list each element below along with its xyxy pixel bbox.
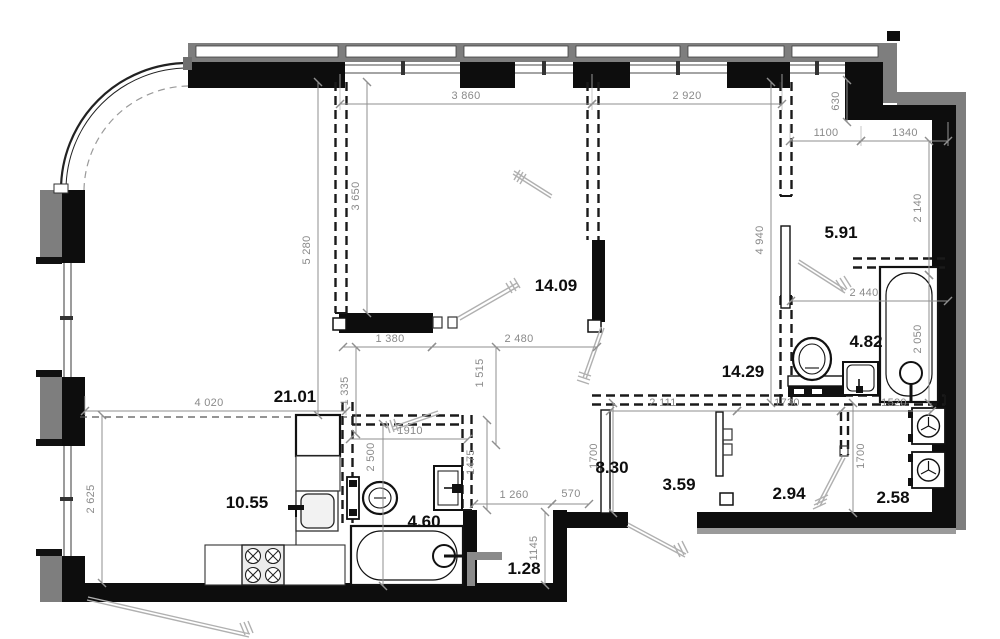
floor-plan-canvas: 3 860 2 920 630 1100 1340 2 140 2 050 2 … — [0, 0, 1000, 639]
dim-1520-label: 1520 — [881, 397, 907, 409]
curved-glass-wall — [54, 57, 192, 193]
bathtub-icon — [351, 526, 463, 585]
dim-2480-label: 2 480 — [504, 333, 533, 345]
dim-1475-label: 1475 — [465, 449, 477, 475]
opening-swing — [458, 278, 520, 320]
top-window-band — [196, 46, 878, 57]
dim-2920: 2 920 — [592, 90, 782, 104]
kitchen-sink-icon — [288, 491, 338, 531]
dashed-partitions — [80, 82, 945, 526]
washing-machine-icon — [908, 452, 945, 488]
dim-5280-label: 5 280 — [301, 235, 313, 264]
entry-door-swing — [627, 523, 688, 557]
toilet-icon — [788, 338, 846, 397]
dim-1475: 1475 — [465, 420, 487, 510]
door-jamb — [723, 429, 732, 440]
dim-630: 630 — [830, 80, 847, 122]
dim-2111: 2 111 — [610, 397, 737, 411]
dim-1700-right: 1700 — [853, 403, 867, 513]
washbasin-icon — [434, 466, 462, 510]
dim-570-label: 570 — [561, 488, 580, 500]
room-label-living: 21.01 — [274, 387, 317, 406]
door-jamb — [448, 317, 457, 328]
dim-1340-label: 1340 — [892, 127, 918, 139]
dim-2140: 2 140 — [912, 141, 929, 275]
opening-swing — [577, 327, 604, 384]
dim-3650: 3 650 — [350, 82, 367, 313]
opening-swing — [87, 597, 253, 637]
room-label-bathroom-small: 4.60 — [407, 512, 440, 531]
dim-2111-label: 2 111 — [649, 397, 676, 409]
dim-1380-label: 1 380 — [375, 333, 404, 345]
room-label-wardrobe: 2.94 — [772, 484, 806, 503]
opening-swing — [798, 260, 851, 293]
dim-630-label: 630 — [830, 91, 842, 110]
dim-4940-label: 4 940 — [754, 225, 766, 254]
dim-1910-label: 1910 — [397, 425, 423, 437]
dim-1100-label: 1100 — [814, 127, 839, 139]
dim-1515: 1 515 — [474, 347, 496, 445]
dim-1335-label: 1 335 — [339, 376, 351, 405]
column-marker — [333, 318, 346, 330]
dimensions: 3 860 2 920 630 1100 1340 2 140 2 050 2 … — [85, 80, 948, 586]
wardrobe-panel — [781, 226, 790, 308]
dim-1260: 1 260 — [474, 489, 552, 504]
room-label-corridor: 14.29 — [722, 362, 765, 381]
room-label-bedroom: 14.09 — [535, 276, 578, 295]
dim-3860: 3 860 — [340, 90, 592, 104]
dim-2920-label: 2 920 — [672, 90, 701, 102]
dim-1380: 1 380 — [343, 333, 432, 347]
dim-2440-label: 2 440 — [849, 287, 878, 299]
column-marker — [720, 493, 733, 505]
dim-3860-label: 3 860 — [451, 90, 480, 102]
dim-4940: 4 940 — [754, 82, 771, 403]
dim-2050-label: 2 050 — [912, 324, 924, 353]
room-label-bathroom-main: 4.82 — [849, 332, 882, 351]
opening-swing — [813, 457, 845, 509]
dim-1145-label: 1145 — [528, 536, 540, 561]
door-jamb — [433, 317, 442, 328]
dim-1700-label: 1700 — [855, 443, 867, 469]
room-label-kitchen: 10.55 — [226, 493, 269, 512]
dim-4020-label: 4 020 — [194, 397, 223, 409]
dim-1260-label: 1 260 — [499, 489, 528, 501]
dim-1910: 1910 — [350, 425, 468, 439]
room-label-storage: 3.59 — [662, 475, 695, 494]
opening-swing — [513, 170, 552, 198]
room-label-hall: 8.30 — [595, 458, 628, 477]
door-leaf — [716, 412, 723, 476]
dim-2140-label: 2 140 — [912, 193, 924, 222]
dim-2500-label: 2 500 — [365, 442, 377, 471]
dim-2625: 2 625 — [85, 415, 102, 583]
dim-1515-label: 1 515 — [474, 358, 486, 387]
dim-1100: 1100 — [790, 127, 861, 141]
dim-3650-label: 3 650 — [350, 181, 362, 210]
floor-plan: 3 860 2 920 630 1100 1340 2 140 2 050 2 … — [0, 0, 1000, 639]
room-label-niche: 1.28 — [507, 559, 540, 578]
dim-570: 570 — [552, 488, 589, 504]
washbasin-icon — [843, 362, 878, 395]
room-label-laundry: 2.58 — [876, 488, 909, 507]
dim-2625-label: 2 625 — [85, 484, 97, 513]
dim-5280: 5 280 — [301, 82, 318, 415]
toilet-icon — [347, 477, 397, 519]
door-jamb — [723, 444, 732, 455]
dim-2480: 2 480 — [432, 333, 597, 347]
fixtures — [205, 267, 945, 585]
dim-1730-label: 1730 — [774, 397, 800, 409]
washing-machine-icon — [908, 408, 945, 444]
room-label-hallway: 5.91 — [824, 223, 857, 242]
stove-icon — [242, 545, 284, 585]
walls — [62, 31, 956, 602]
column-marker — [588, 320, 601, 332]
fridge-icon — [296, 415, 340, 491]
